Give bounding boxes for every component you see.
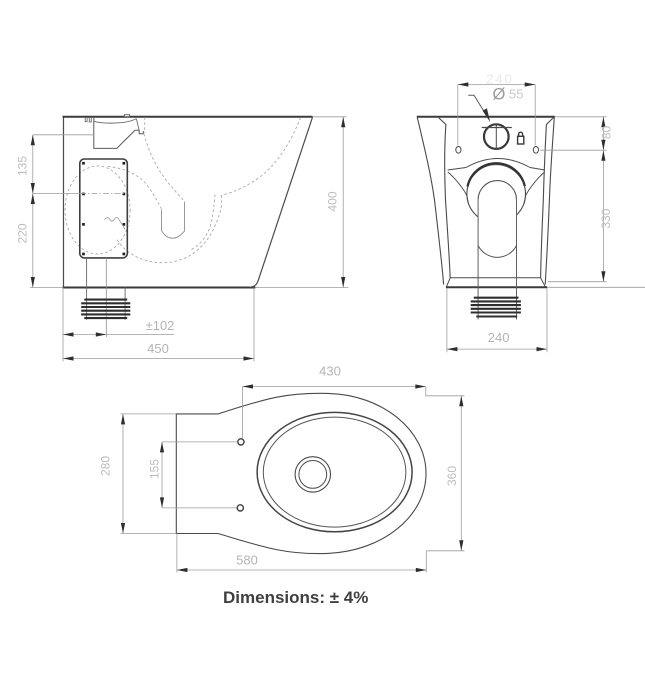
svg-text:450: 450 (147, 341, 169, 356)
svg-text:240: 240 (488, 330, 510, 345)
svg-text:400: 400 (326, 191, 340, 211)
svg-text:135: 135 (16, 156, 30, 176)
svg-text:155: 155 (148, 459, 162, 479)
svg-text:220: 220 (16, 223, 30, 243)
svg-text:Ø: Ø (493, 86, 506, 104)
svg-text:360: 360 (445, 466, 459, 486)
svg-text:80: 80 (600, 126, 614, 140)
svg-text:Dimensions: ± 4%: Dimensions: ± 4% (223, 588, 368, 607)
svg-text:580: 580 (236, 553, 258, 568)
svg-text:±102: ±102 (146, 318, 175, 333)
svg-text:330: 330 (599, 208, 613, 228)
svg-text:55: 55 (509, 87, 523, 102)
svg-text:280: 280 (99, 456, 113, 476)
svg-text:430: 430 (319, 364, 341, 379)
svg-text:240: 240 (486, 72, 514, 87)
